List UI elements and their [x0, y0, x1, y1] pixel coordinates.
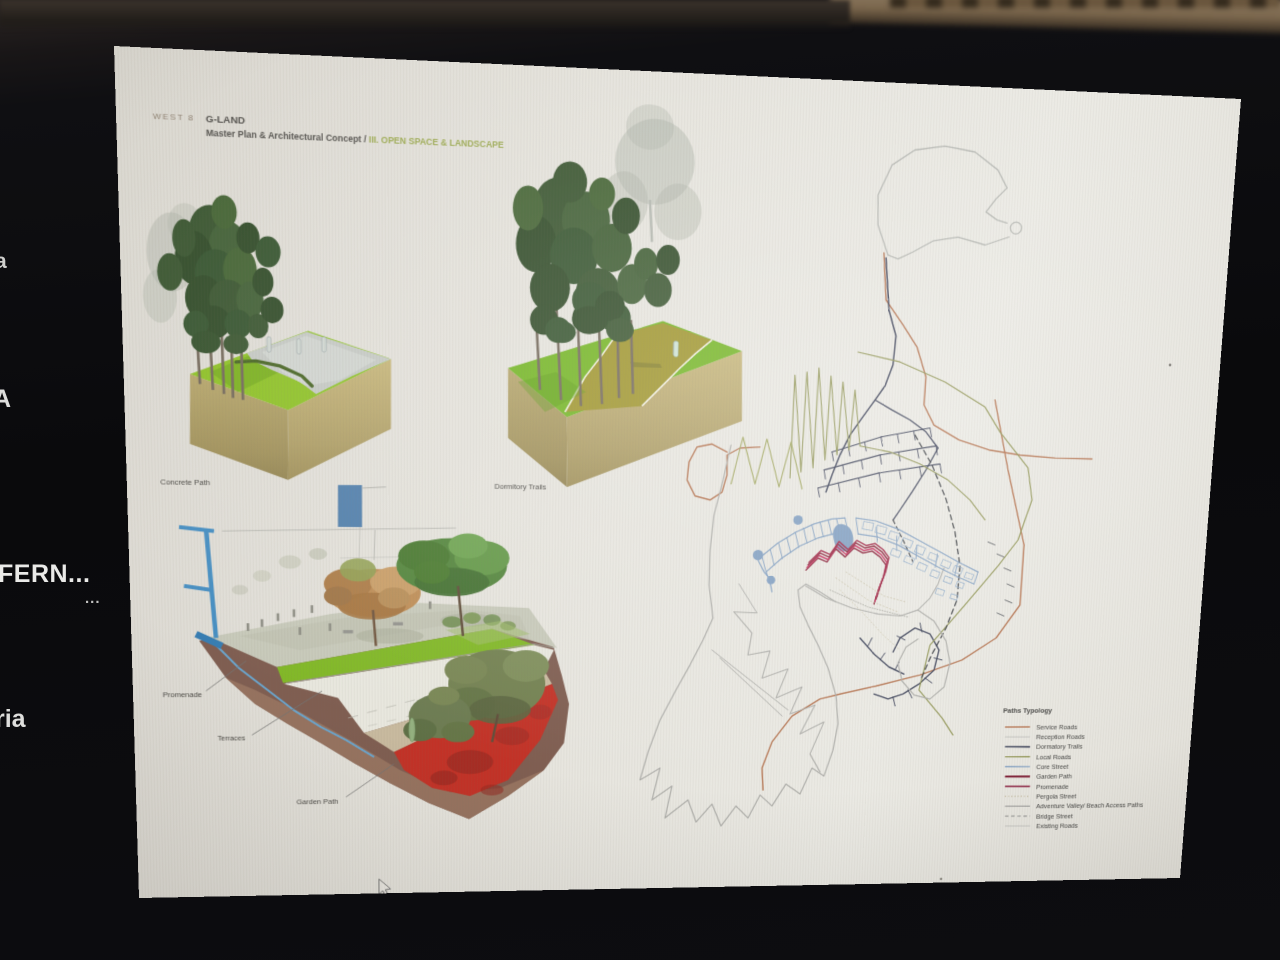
svg-text:Service Roads: Service Roads [1036, 724, 1078, 731]
svg-text:Existing Roads: Existing Roads [1036, 822, 1078, 830]
svg-text:Promenade: Promenade [163, 691, 203, 699]
svg-text:Dormitory Trails: Dormitory Trails [494, 483, 546, 492]
svg-text:Terraces: Terraces [217, 734, 245, 742]
svg-text:G-LAND: G-LAND [206, 114, 246, 126]
svg-text:Pergola Street: Pergola Street [1036, 793, 1077, 801]
svg-text:Adventure Valley/ Beach Access: Adventure Valley/ Beach Access Paths [1036, 802, 1144, 810]
svg-text:Core Street: Core Street [1036, 763, 1069, 770]
svg-text:Dormatory Trails: Dormatory Trails [1036, 743, 1083, 751]
svg-text:Concrete Path: Concrete Path [160, 478, 210, 487]
svg-text:Promenade: Promenade [1036, 783, 1069, 791]
svg-text:Reception Roads: Reception Roads [1036, 733, 1085, 741]
svg-text:Master Plan & Architectural Co: Master Plan & Architectural Concept / II… [206, 128, 504, 150]
svg-text:Garden Path: Garden Path [1036, 773, 1072, 781]
svg-text:WEST 8: WEST 8 [153, 111, 195, 122]
svg-text:Paths Typology: Paths Typology [1003, 707, 1053, 715]
svg-text:Garden Path: Garden Path [296, 798, 338, 806]
svg-text:Local Roads: Local Roads [1036, 753, 1072, 760]
svg-text:Bridge Street: Bridge Street [1036, 813, 1074, 821]
